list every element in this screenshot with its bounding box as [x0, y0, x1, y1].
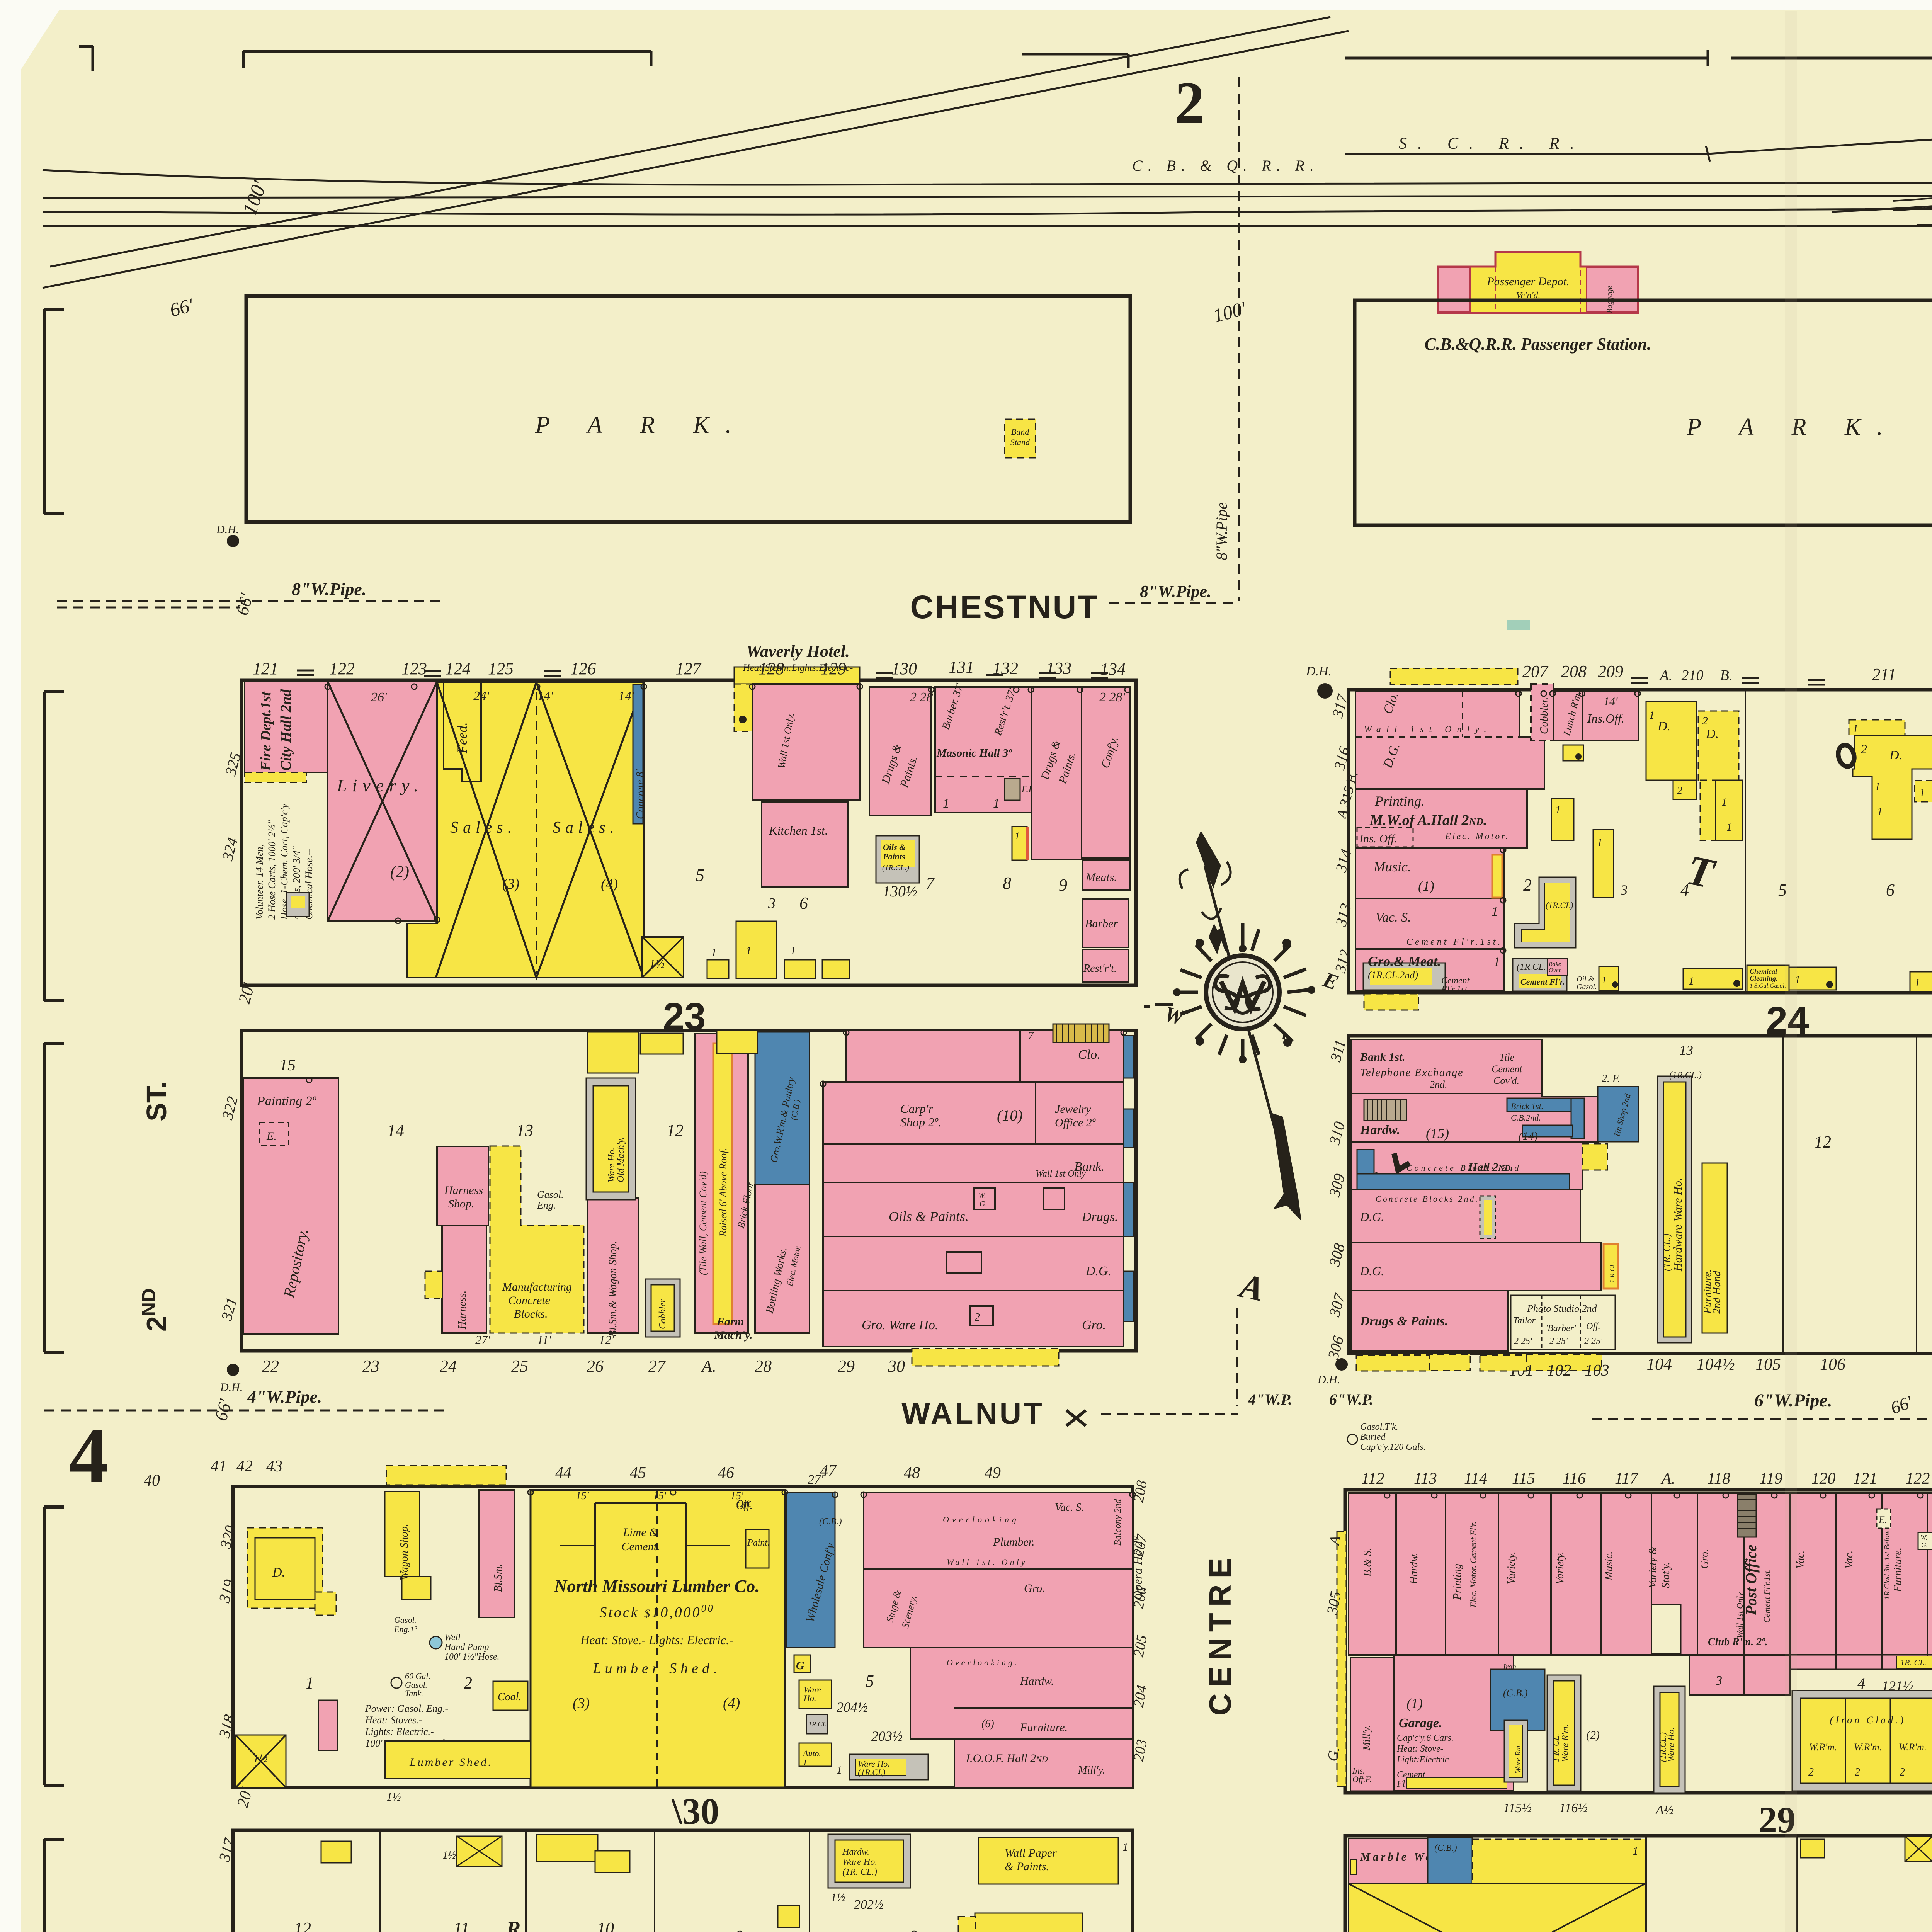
- svg-text:Cobbler.: Cobbler.: [1538, 697, 1550, 734]
- svg-text:(10): (10): [997, 1107, 1023, 1124]
- svg-text:Wall Paper: Wall Paper: [1005, 1847, 1057, 1859]
- svg-text:24: 24: [440, 1357, 457, 1376]
- svg-text:Gasol.: Gasol.: [1577, 983, 1597, 991]
- svg-text:D.G.: D.G.: [1360, 1264, 1384, 1278]
- svg-text:44: 44: [555, 1464, 571, 1482]
- svg-text:100' 1½"Hose.: 100' 1½"Hose.: [444, 1652, 500, 1662]
- svg-text:Rest'r't.: Rest'r't.: [1083, 963, 1117, 975]
- svg-text:2 Hose Carts, 1000' 2½": 2 Hose Carts, 1000' 2½": [266, 820, 277, 920]
- svg-text:3: 3: [768, 895, 776, 912]
- svg-text:Harness: Harness: [444, 1184, 483, 1197]
- svg-text:Bl.Sm.: Bl.Sm.: [492, 1564, 504, 1592]
- svg-text:(1): (1): [1418, 878, 1434, 894]
- svg-text:9: 9: [1868, 1929, 1877, 1932]
- svg-text:Balcony 2nd: Balcony 2nd: [1113, 1498, 1123, 1546]
- svg-text:1: 1: [1122, 1841, 1128, 1854]
- svg-text:1: 1: [1875, 781, 1880, 793]
- svg-text:2 25': 2 25': [1584, 1336, 1603, 1346]
- svg-text:Club R'm. 2º.: Club R'm. 2º.: [1708, 1636, 1768, 1648]
- svg-text:Stand: Stand: [1010, 437, 1030, 447]
- svg-text:1: 1: [837, 1764, 842, 1776]
- svg-text:Wall 1st Only: Wall 1st Only: [1735, 1592, 1745, 1638]
- svg-text:2nd.: 2nd.: [1430, 1079, 1447, 1090]
- svg-text:117: 117: [1615, 1470, 1639, 1488]
- svg-text:1½: 1½: [253, 1752, 268, 1765]
- svg-text:Cap'c'y.120 Gals.: Cap'c'y.120 Gals.: [1360, 1442, 1426, 1452]
- svg-text:P A R K.: P A R K.: [535, 412, 748, 438]
- svg-text:3: 3: [1620, 882, 1628, 898]
- svg-text:A½: A½: [1655, 1803, 1673, 1817]
- svg-text:3: 3: [1715, 1673, 1722, 1688]
- svg-text:119: 119: [1759, 1470, 1782, 1488]
- svg-text:S. C. R. R.: S. C. R. R.: [1399, 135, 1585, 153]
- svg-text:2: 2: [1175, 70, 1205, 136]
- svg-text:Office 2º: Office 2º: [1055, 1116, 1096, 1129]
- svg-text:45: 45: [630, 1464, 646, 1482]
- svg-text:1: 1: [1853, 723, 1858, 735]
- svg-text:Bank 1st.: Bank 1st.: [1360, 1051, 1405, 1063]
- svg-text:(1R.CL): (1R.CL): [1546, 900, 1573, 910]
- svg-text:Variety &: Variety &: [1647, 1546, 1659, 1588]
- svg-text:1: 1: [746, 944, 752, 957]
- svg-text:'Barber': 'Barber': [1546, 1323, 1576, 1333]
- svg-text:129: 129: [821, 659, 846, 678]
- svg-text:Gro.& Meat.: Gro.& Meat.: [1368, 954, 1441, 969]
- svg-text:14: 14: [387, 1121, 404, 1140]
- svg-text:Hardware Ware Ho.: Hardware Ware Ho.: [1672, 1178, 1684, 1272]
- svg-text:(C.B.): (C.B.): [1503, 1687, 1528, 1699]
- svg-text:(1R.CL.): (1R.CL.): [882, 864, 909, 872]
- svg-text:12: 12: [294, 1919, 311, 1932]
- svg-text:(2): (2): [1586, 1729, 1600, 1742]
- svg-text:7: 7: [926, 874, 935, 893]
- svg-text:9: 9: [1059, 876, 1067, 895]
- svg-text:Meats.: Meats.: [1085, 871, 1117, 884]
- svg-text:Light:Electric-: Light:Electric-: [1396, 1755, 1452, 1765]
- svg-text:5: 5: [866, 1672, 874, 1690]
- svg-text:4: 4: [1857, 1675, 1865, 1692]
- svg-text:Cap'c'y.6 Cars.: Cap'c'y.6 Cars.: [1397, 1733, 1454, 1743]
- svg-text:1: 1: [711, 946, 717, 959]
- svg-text:12: 12: [1814, 1133, 1831, 1151]
- svg-text:WALNUT: WALNUT: [901, 1396, 1044, 1430]
- svg-text:Tank.: Tank.: [405, 1689, 423, 1698]
- svg-text:Band: Band: [1011, 427, 1029, 437]
- svg-text:Concrete Blocks 2nd: Concrete Blocks 2nd: [1406, 1163, 1521, 1173]
- svg-text:2: 2: [1702, 714, 1708, 727]
- svg-text:Fire Dept.1st: Fire Dept.1st: [258, 691, 274, 771]
- svg-text:W.R'm.: W.R'm.: [1899, 1742, 1927, 1753]
- svg-text:1½: 1½: [649, 957, 665, 971]
- svg-text:2: 2: [1523, 876, 1532, 895]
- svg-text:Variety.: Variety.: [1554, 1551, 1566, 1584]
- svg-text:22: 22: [262, 1357, 279, 1376]
- svg-text:46: 46: [718, 1464, 734, 1482]
- svg-text:8: 8: [1003, 874, 1011, 893]
- svg-text:1 R.CL.: 1 R.CL.: [1608, 1261, 1616, 1283]
- svg-text:104½: 104½: [1697, 1355, 1735, 1374]
- svg-text:123: 123: [401, 659, 427, 678]
- svg-text:Wall 1st Only.: Wall 1st Only.: [1364, 724, 1492, 735]
- svg-text:Ware Ho.: Ware Ho.: [842, 1857, 877, 1867]
- svg-text:15': 15': [576, 1490, 589, 1502]
- svg-text:Cement Fl'r.: Cement Fl'r.: [1520, 977, 1565, 986]
- svg-text:(2): (2): [390, 863, 409, 881]
- svg-text:B.& S.: B.& S.: [1362, 1548, 1374, 1577]
- svg-text:2: 2: [1808, 1766, 1814, 1778]
- svg-text:2: 2: [1861, 742, 1867, 757]
- svg-text:Paints: Paints: [883, 852, 905, 861]
- svg-text:1R. CL.: 1R. CL.: [1900, 1658, 1927, 1667]
- svg-text:15': 15': [653, 1490, 667, 1502]
- svg-text:2. F.: 2. F.: [1602, 1073, 1621, 1085]
- svg-text:2: 2: [975, 1311, 980, 1323]
- svg-text:A.: A.: [701, 1357, 716, 1376]
- svg-text:W.R'm.: W.R'm.: [1854, 1742, 1882, 1753]
- svg-text:1: 1: [1015, 830, 1020, 842]
- svg-text:4"W.P.: 4"W.P.: [1248, 1391, 1292, 1408]
- svg-text:W.R'm.: W.R'm.: [1809, 1742, 1837, 1753]
- svg-text:Waverly Hotel.: Waverly Hotel.: [746, 642, 850, 661]
- svg-text:202½: 202½: [854, 1898, 884, 1912]
- svg-text:(1R.CL.): (1R.CL.): [1658, 1732, 1668, 1762]
- svg-text:1: 1: [1877, 806, 1883, 818]
- svg-text:30: 30: [888, 1357, 905, 1376]
- svg-text:(1R. CL.): (1R. CL.): [842, 1867, 877, 1877]
- svg-text:1: 1: [1555, 804, 1561, 816]
- svg-text:118: 118: [1707, 1470, 1730, 1488]
- svg-text:208: 208: [1561, 662, 1587, 681]
- svg-text:(1R. CL.): (1R. CL.): [1661, 1234, 1672, 1272]
- svg-text:120: 120: [1811, 1470, 1836, 1488]
- svg-text:Volunteer. 14 Men,: Volunteer. 14 Men,: [254, 844, 265, 920]
- svg-text:130: 130: [891, 659, 917, 678]
- svg-text:Old Mach'y.: Old Mach'y.: [616, 1137, 626, 1182]
- svg-text:1: 1: [790, 944, 796, 957]
- svg-text:(14): (14): [1519, 1130, 1538, 1143]
- svg-text:Shop 2º.: Shop 2º.: [900, 1115, 941, 1129]
- svg-text:Cement Fl'r.1st.: Cement Fl'r.1st.: [1762, 1569, 1772, 1623]
- svg-text:28: 28: [755, 1357, 772, 1376]
- svg-text:4: 4: [1680, 881, 1689, 900]
- svg-text:104: 104: [1646, 1355, 1672, 1374]
- svg-text:8"W.Pipe: 8"W.Pipe: [1213, 502, 1230, 560]
- svg-text:Passenger Depot.: Passenger Depot.: [1486, 275, 1569, 288]
- svg-text:Carp'r: Carp'r: [900, 1102, 934, 1116]
- svg-text:Oven: Oven: [1549, 967, 1562, 974]
- svg-text:10: 10: [597, 1919, 614, 1932]
- svg-text:1½: 1½: [442, 1849, 456, 1861]
- svg-text:134: 134: [1100, 660, 1126, 679]
- svg-text:Harness.: Harness.: [456, 1291, 468, 1330]
- svg-text:A.: A.: [1659, 667, 1673, 684]
- svg-text:Well: Well: [444, 1633, 461, 1643]
- svg-text:G.: G.: [1325, 1746, 1343, 1763]
- svg-text:8"W.Pipe.: 8"W.Pipe.: [292, 579, 366, 599]
- svg-text:15: 15: [279, 1056, 296, 1074]
- svg-text:Drugs.: Drugs.: [1082, 1210, 1118, 1224]
- svg-text:204½: 204½: [837, 1699, 868, 1715]
- svg-text:CENTRE: CENTRE: [1203, 1551, 1237, 1716]
- svg-text:Ins. Off.: Ins. Off.: [1359, 832, 1397, 845]
- svg-text:Post Office: Post Office: [1742, 1544, 1760, 1616]
- svg-text:Elec. Motor.: Elec. Motor.: [1445, 832, 1509, 842]
- svg-text:112: 112: [1361, 1470, 1384, 1488]
- svg-text:42: 42: [236, 1458, 253, 1475]
- svg-text:I.O.O.F. Hall 2ND: I.O.O.F. Hall 2ND: [966, 1752, 1048, 1765]
- svg-text:Hardw.: Hardw.: [842, 1847, 869, 1857]
- svg-text:(6): (6): [981, 1718, 994, 1730]
- svg-text:106: 106: [1820, 1355, 1845, 1374]
- svg-text:C.B.2nd.: C.B.2nd.: [1511, 1113, 1541, 1122]
- svg-text:121: 121: [253, 659, 278, 678]
- svg-text:Music.: Music.: [1603, 1551, 1615, 1581]
- svg-text:209: 209: [1598, 662, 1623, 681]
- svg-text:G: G: [796, 1659, 804, 1672]
- svg-text:2: 2: [1855, 1766, 1860, 1778]
- svg-text:43: 43: [266, 1458, 282, 1475]
- svg-text:1: 1: [1493, 955, 1500, 969]
- svg-text:Chemical: Chemical: [1750, 968, 1777, 975]
- svg-text:Overlooking: Overlooking: [943, 1515, 1019, 1524]
- svg-text:E.: E.: [266, 1130, 277, 1143]
- svg-text:Gasol.: Gasol.: [394, 1615, 417, 1625]
- svg-text:Lime &: Lime &: [623, 1526, 659, 1539]
- svg-text:Concrete: Concrete: [508, 1294, 550, 1307]
- svg-text:48: 48: [904, 1464, 920, 1482]
- svg-text:C. B. & Q. R. R.: C. B. & Q. R. R.: [1132, 157, 1319, 174]
- svg-text:Ware R'm.: Ware R'm.: [1560, 1724, 1570, 1762]
- svg-text:Kitchen 1st.: Kitchen 1st.: [769, 823, 828, 837]
- svg-text:Vac.: Vac.: [1843, 1551, 1855, 1569]
- svg-text:Livery.: Livery.: [337, 776, 423, 795]
- svg-text:116½: 116½: [1559, 1801, 1588, 1815]
- svg-text:(1R.CL.): (1R.CL.): [1669, 1070, 1702, 1080]
- svg-text:Overlooking.: Overlooking.: [947, 1658, 1019, 1667]
- svg-text:D.: D.: [1706, 727, 1719, 741]
- svg-text:2: 2: [1677, 785, 1682, 797]
- svg-text:Garage.: Garage.: [1399, 1716, 1442, 1730]
- svg-text:102: 102: [1547, 1362, 1571, 1379]
- svg-text:Farm: Farm: [716, 1315, 744, 1328]
- svg-text:Elec. Motor. Cement Fl'r.: Elec. Motor. Cement Fl'r.: [1468, 1522, 1478, 1608]
- svg-text:& Paints.: & Paints.: [1005, 1860, 1049, 1873]
- svg-text:12: 12: [667, 1121, 684, 1140]
- svg-text:9: 9: [735, 1927, 743, 1932]
- svg-text:26': 26': [371, 690, 387, 704]
- svg-text:Brick 1st.: Brick 1st.: [1511, 1101, 1543, 1111]
- svg-text:R: R: [506, 1917, 520, 1932]
- svg-text:Ho.: Ho.: [803, 1693, 816, 1703]
- svg-text:1: 1: [1689, 975, 1694, 987]
- svg-text:121: 121: [1853, 1470, 1878, 1488]
- svg-text:210: 210: [1682, 667, 1704, 684]
- svg-text:Shop.: Shop.: [448, 1197, 474, 1210]
- svg-text:Gro.: Gro.: [1082, 1318, 1106, 1332]
- svg-text:Painting 2º: Painting 2º: [257, 1094, 317, 1108]
- svg-text:Fl'r.1st.: Fl'r.1st.: [1441, 985, 1469, 995]
- svg-text:10: 10: [1713, 1929, 1730, 1932]
- svg-text:W.: W.: [1920, 1534, 1927, 1541]
- svg-text:Stat'y.: Stat'y.: [1660, 1562, 1672, 1588]
- svg-text:60 Gal.: 60 Gal.: [405, 1671, 430, 1681]
- svg-text:211: 211: [1872, 665, 1896, 684]
- svg-text:1: 1: [1492, 905, 1498, 919]
- svg-text:Variety.: Variety.: [1505, 1551, 1517, 1584]
- svg-text:Hardw.: Hardw.: [1020, 1675, 1054, 1687]
- svg-text:Masonic Hall 3º: Masonic Hall 3º: [936, 747, 1012, 759]
- svg-text:(1): (1): [1406, 1696, 1423, 1711]
- svg-text:Cement.: Cement.: [621, 1540, 660, 1553]
- svg-text:Manufacturing: Manufacturing: [502, 1281, 572, 1293]
- svg-text:116: 116: [1563, 1470, 1586, 1488]
- svg-text:15': 15': [730, 1490, 744, 1502]
- svg-text:1: 1: [305, 1673, 314, 1692]
- svg-text:1 S.Gal.Gasol.: 1 S.Gal.Gasol.: [1750, 983, 1786, 989]
- svg-text:Buried: Buried: [1360, 1432, 1386, 1442]
- svg-text:Eng.1º: Eng.1º: [394, 1624, 417, 1634]
- svg-text:115½: 115½: [1503, 1801, 1532, 1815]
- svg-text:2 25': 2 25': [1549, 1336, 1568, 1346]
- svg-text:Telephone Exchange: Telephone Exchange: [1360, 1067, 1463, 1079]
- svg-text:(4): (4): [723, 1695, 740, 1711]
- svg-text:Cobbler: Cobbler: [658, 1299, 668, 1329]
- svg-text:7: 7: [1028, 1029, 1034, 1042]
- svg-text:14': 14': [1604, 695, 1618, 708]
- svg-text:122: 122: [329, 659, 355, 678]
- svg-text:D.H.: D.H.: [220, 1381, 243, 1394]
- svg-text:D.: D.: [1657, 719, 1670, 733]
- svg-text:D.H.: D.H.: [1317, 1373, 1340, 1386]
- svg-text:City Hall 2nd: City Hall 2nd: [278, 689, 294, 771]
- svg-text:24': 24': [473, 689, 490, 703]
- svg-text:D.: D.: [272, 1565, 285, 1580]
- svg-text:Mill'y.: Mill'y.: [1361, 1725, 1372, 1751]
- svg-text:8"W.Pipe.: 8"W.Pipe.: [1140, 582, 1211, 601]
- svg-text:Wagon Shop.: Wagon Shop.: [398, 1524, 410, 1580]
- svg-text:Gro. Ware Ho.: Gro. Ware Ho.: [862, 1318, 938, 1332]
- svg-text:1: 1: [1726, 821, 1732, 833]
- svg-text:Wall 1st Only: Wall 1st Only: [1036, 1169, 1086, 1179]
- svg-text:Gasol.T'k.: Gasol.T'k.: [1360, 1422, 1398, 1432]
- svg-text:(1R.CL): (1R.CL): [858, 1767, 886, 1777]
- svg-text:1: 1: [1633, 1845, 1638, 1857]
- svg-text:Off.F.: Off.F.: [1352, 1774, 1372, 1784]
- svg-text:Ware Ho.: Ware Ho.: [607, 1148, 617, 1182]
- svg-text:Concrete Blocks 2nd.: Concrete Blocks 2nd.: [1376, 1194, 1479, 1204]
- svg-text:4"W.Pipe.: 4"W.Pipe.: [247, 1387, 322, 1406]
- svg-text:D.H.: D.H.: [216, 523, 239, 536]
- svg-text:Clo.: Clo.: [1078, 1048, 1100, 1062]
- svg-text:1: 1: [1649, 709, 1655, 721]
- svg-text:1: 1: [943, 796, 949, 811]
- svg-text:C.B.&Q.R.R. Passenger Station.: C.B.&Q.R.R. Passenger Station.: [1425, 335, 1651, 354]
- svg-text:128: 128: [759, 659, 784, 678]
- svg-text:Concrete 8': Concrete 8': [634, 769, 646, 819]
- svg-text:121½: 121½: [1882, 1678, 1913, 1694]
- svg-text:B.: B.: [1720, 667, 1733, 684]
- svg-text:D.G.: D.G.: [1360, 1210, 1384, 1224]
- svg-text:49: 49: [985, 1464, 1001, 1482]
- svg-text:Gasol.: Gasol.: [537, 1189, 564, 1200]
- svg-text:6: 6: [1886, 881, 1895, 900]
- svg-text:G.: G.: [1921, 1541, 1928, 1549]
- svg-text:Hand Pump: Hand Pump: [444, 1642, 489, 1652]
- svg-text:40: 40: [144, 1472, 160, 1490]
- svg-text:Blocks.: Blocks.: [514, 1308, 548, 1320]
- svg-text:5: 5: [696, 865, 704, 885]
- svg-text:(1R.CL.): (1R.CL.): [1517, 962, 1549, 972]
- svg-text:4: 4: [69, 1412, 109, 1499]
- svg-text:Bake: Bake: [1549, 961, 1561, 968]
- svg-text:133: 133: [1046, 659, 1071, 678]
- svg-text:Oil &: Oil &: [1577, 975, 1595, 983]
- svg-text:26: 26: [587, 1357, 604, 1376]
- svg-text:Hardw.: Hardw.: [1360, 1123, 1400, 1137]
- svg-text:2 25': 2 25': [1514, 1336, 1532, 1346]
- svg-text:Vac. S.: Vac. S.: [1376, 910, 1411, 925]
- svg-text:29: 29: [838, 1357, 855, 1376]
- svg-text:W.: W.: [978, 1191, 986, 1200]
- svg-text:1: 1: [1721, 796, 1727, 808]
- svg-text:1R.CL: 1R.CL: [808, 1720, 827, 1728]
- svg-text:Furniture.: Furniture.: [1020, 1721, 1068, 1734]
- svg-text:Lumber Shed.: Lumber Shed.: [409, 1756, 493, 1769]
- svg-text:47: 47: [820, 1462, 837, 1480]
- svg-text:25: 25: [511, 1357, 528, 1376]
- svg-text:Sales.: Sales.: [450, 819, 516, 837]
- svg-text:103: 103: [1585, 1362, 1609, 1379]
- svg-text:1: 1: [1920, 787, 1925, 799]
- svg-text:Gro.: Gro.: [1024, 1582, 1045, 1595]
- svg-text:126: 126: [570, 659, 596, 678]
- svg-text:Drugs & Paints.: Drugs & Paints.: [1360, 1314, 1448, 1328]
- svg-text:Heat: Stoves.-: Heat: Stoves.-: [365, 1714, 422, 1726]
- svg-text:(3): (3): [502, 876, 519, 892]
- svg-text:Barber: Barber: [1085, 917, 1118, 930]
- svg-text:41: 41: [211, 1458, 227, 1475]
- svg-text:1½: 1½: [386, 1791, 401, 1803]
- svg-text:Photo Studio 2nd: Photo Studio 2nd: [1527, 1303, 1597, 1314]
- svg-text:1: 1: [1602, 975, 1607, 986]
- svg-text:125: 125: [488, 659, 514, 678]
- svg-text:8: 8: [909, 1927, 917, 1932]
- svg-text:23: 23: [362, 1357, 379, 1376]
- svg-text:Eng.: Eng.: [537, 1200, 556, 1211]
- svg-text:2 28': 2 28': [1099, 690, 1126, 704]
- svg-text:D.: D.: [1889, 748, 1902, 762]
- svg-text:Jewelry: Jewelry: [1055, 1103, 1091, 1116]
- svg-text:6"W.P.: 6"W.P.: [1329, 1391, 1373, 1408]
- svg-text:1½: 1½: [831, 1891, 845, 1904]
- svg-text:(Tile Wall, Cement Cov'd): (Tile Wall, Cement Cov'd): [697, 1171, 709, 1275]
- svg-text:203½: 203½: [871, 1728, 903, 1744]
- svg-text:(4): (4): [601, 876, 618, 892]
- svg-text:Plumber.: Plumber.: [993, 1536, 1035, 1548]
- svg-text:Cov'd.: Cov'd.: [1493, 1075, 1519, 1086]
- svg-text:14': 14': [618, 689, 634, 703]
- svg-text:Furniture.: Furniture.: [1892, 1548, 1904, 1592]
- svg-text:13: 13: [1679, 1043, 1693, 1058]
- svg-text:1: 1: [803, 1757, 807, 1767]
- svg-text:Bl.Sm.& Wagon Shop.: Bl.Sm.& Wagon Shop.: [607, 1241, 619, 1337]
- svg-text:(Iron Clad.): (Iron Clad.): [1830, 1714, 1906, 1726]
- svg-text:Cement Fl'r.1st.: Cement Fl'r.1st.: [1406, 937, 1502, 947]
- svg-text:Music.: Music.: [1373, 859, 1411, 874]
- svg-text:127: 127: [675, 659, 702, 678]
- svg-text:1: 1: [1597, 837, 1602, 849]
- svg-text:Oils &: Oils &: [883, 842, 906, 852]
